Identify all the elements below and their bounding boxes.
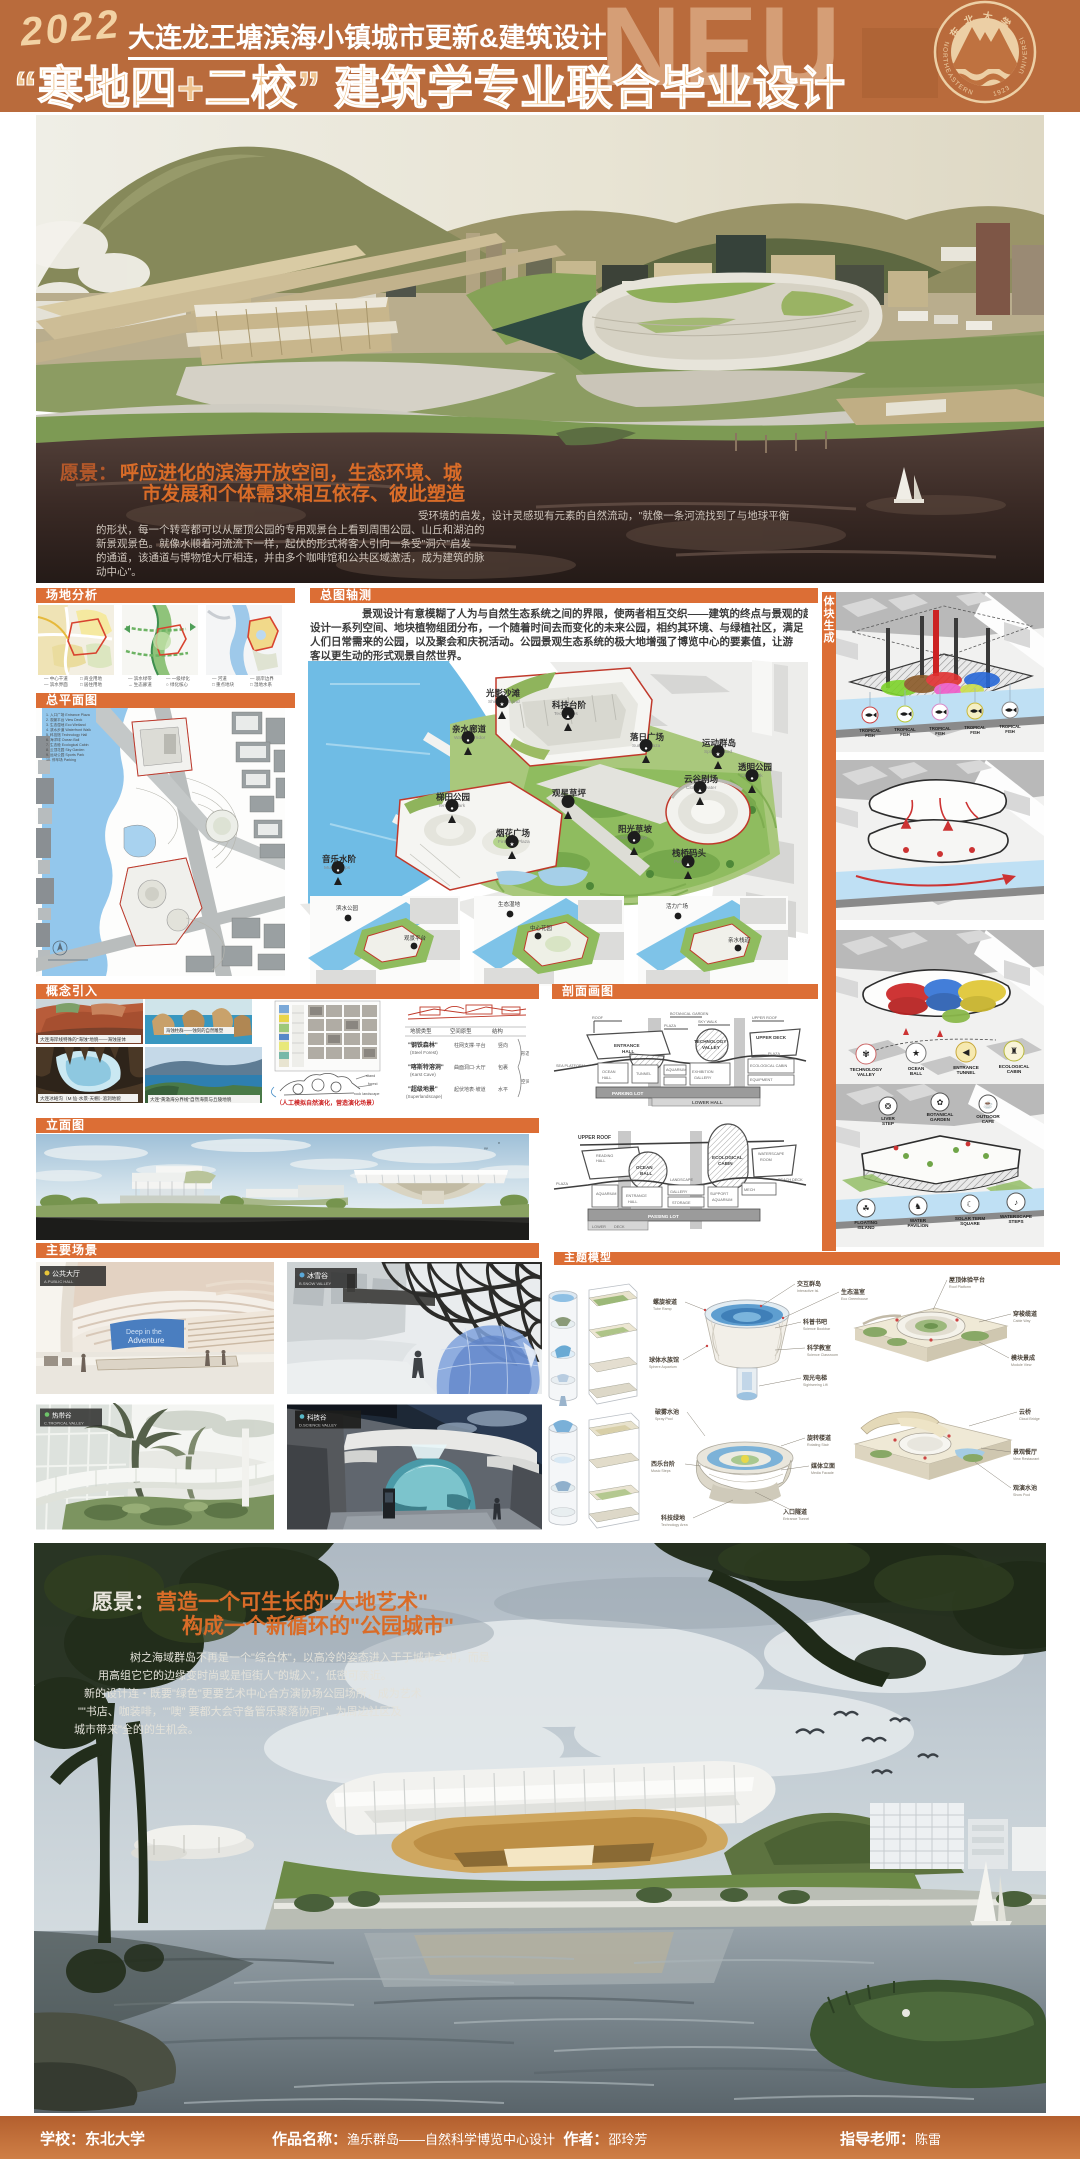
svg-text:ROOF: ROOF	[592, 1016, 604, 1020]
svg-text:Roof Platform: Roof Platform	[949, 1285, 971, 1289]
svg-text:空间原型: 空间原型	[450, 1027, 472, 1035]
svg-text:PAVILION: PAVILION	[907, 1223, 929, 1228]
svg-text:大连冰峪沟（M 仙·水景·天棚）·溶洞地貌: 大连冰峪沟（M 仙·水景·天棚）·溶洞地貌	[40, 1095, 121, 1102]
svg-text:3. 生态湿地 Eco Wetland: 3. 生态湿地 Eco Wetland	[46, 722, 86, 727]
svg-text:公共大厅: 公共大厅	[52, 1269, 80, 1278]
svg-text:EXHIBITION: EXHIBITION	[692, 1070, 714, 1074]
svg-text:— 滨水绿带: — 滨水绿带	[128, 675, 152, 682]
svg-text:Sightseeing Lift: Sightseeing Lift	[803, 1383, 828, 1387]
svg-text:DECK: DECK	[614, 1225, 625, 1229]
svg-text:GALLERY: GALLERY	[670, 1190, 688, 1194]
svg-text:stand: stand	[366, 1074, 375, 1078]
svg-text:Entrance Tunnel: Entrance Tunnel	[783, 1517, 809, 1521]
svg-text:EQUIPMENT: EQUIPMENT	[750, 1078, 773, 1082]
svg-text:科技绿地: 科技绿地	[661, 1514, 685, 1522]
svg-text:TUNNEL: TUNNEL	[636, 1072, 651, 1076]
svg-text:用高组它它的边缘变时尚或是恒街人"的城入"，低密可亲近。: 用高组它它的边缘变时尚或是恒街人"的城入"，低密可亲近。	[98, 1668, 392, 1682]
svg-text:D.SCIENCE VALLEY: D.SCIENCE VALLEY	[299, 1423, 337, 1428]
svg-text:曲面洞口·大厅: 曲面洞口·大厅	[454, 1064, 486, 1071]
svg-text:Spray Pool: Spray Pool	[655, 1417, 673, 1421]
svg-text:人们日常需来的公园，以及聚会和庆祝活动。公园景观生态系统的极: 人们日常需来的公园，以及聚会和庆祝活动。公园景观生态系统的极大地增强了博览中心的…	[310, 635, 793, 648]
svg-text:UPPER DECK: UPPER DECK	[756, 1035, 787, 1040]
svg-text:BALL: BALL	[910, 1071, 922, 1076]
svg-text:观景平台: 观景平台	[404, 934, 427, 942]
svg-text:HALL: HALL	[596, 1159, 606, 1163]
svg-text:亲水栈道: 亲水栈道	[728, 936, 751, 944]
svg-text:OCEAN: OCEAN	[636, 1165, 653, 1170]
svg-text:PLAZA: PLAZA	[768, 1052, 780, 1056]
svg-text:(Superlandscape): (Superlandscape)	[406, 1094, 443, 1099]
svg-text:包裹: 包裹	[498, 1064, 508, 1071]
svg-text:STORAGE: STORAGE	[672, 1201, 691, 1205]
svg-text:5. 科技馆 Technology Hall: 5. 科技馆 Technology Hall	[46, 732, 87, 737]
svg-text:中心花园: 中心花园	[530, 924, 553, 932]
svg-text:媒体立面: 媒体立面	[811, 1462, 835, 1470]
svg-text:柱网支撑·平台: 柱网支撑·平台	[454, 1042, 486, 1049]
svg-text:VALLEY: VALLEY	[857, 1072, 875, 1077]
svg-text:❂: ❂	[885, 1102, 892, 1111]
svg-text:→ 生态廊道: → 生态廊道	[128, 681, 152, 688]
svg-text:7. 生态舱 Ecological Cabin: 7. 生态舱 Ecological Cabin	[46, 742, 89, 747]
svg-text:ROOM: ROOM	[760, 1158, 772, 1162]
svg-text:★: ★	[716, 751, 721, 758]
svg-text:□ 湿地水系: □ 湿地水系	[250, 681, 272, 688]
svg-text:BOTANICAL GARDEN: BOTANICAL GARDEN	[670, 1012, 709, 1016]
svg-text:WATERSCAPE: WATERSCAPE	[758, 1152, 785, 1156]
svg-text:6. 海洋球 Ocean Ball: 6. 海洋球 Ocean Ball	[46, 737, 80, 742]
svg-text:热带谷: 热带谷	[52, 1411, 72, 1420]
svg-text:旋转楼道: 旋转楼道	[806, 1434, 831, 1442]
svg-text:□ 商业用地: □ 商业用地	[80, 675, 102, 682]
svg-text:PLAZA: PLAZA	[664, 1024, 676, 1028]
svg-text:活力广场: 活力广场	[666, 902, 689, 910]
svg-text:受环境的启发，设计灵感现有元素的自然流动，"就像一条河流找到: 受环境的启发，设计灵感现有元素的自然流动，"就像一条河流找到了与地球平衡	[418, 509, 790, 522]
svg-text:起伏地表·坡道: 起伏地表·坡道	[454, 1086, 486, 1093]
svg-text:愿景：: 愿景：	[60, 462, 117, 484]
svg-text:生态湿地: 生态湿地	[498, 900, 521, 908]
svg-text:屋顶体验平台: 屋顶体验平台	[949, 1276, 985, 1284]
svg-text:2. 观景平台 View Deck: 2. 观景平台 View Deck	[46, 717, 82, 722]
svg-text:科技谷: 科技谷	[307, 1413, 327, 1422]
svg-text:rock landscape: rock landscape	[354, 1092, 380, 1096]
svg-text:ᵛ: ᵛ	[497, 1141, 500, 1147]
svg-text:AQUARIUM: AQUARIUM	[712, 1198, 732, 1202]
svg-text:观光电梯: 观光电梯	[803, 1374, 827, 1382]
svg-text:科学教室: 科学教室	[807, 1344, 831, 1352]
svg-text:VALLEY: VALLEY	[702, 1045, 720, 1050]
svg-text:Adventure: Adventure	[128, 1336, 165, 1345]
svg-text:□ 居住用地: □ 居住用地	[80, 681, 102, 688]
svg-text:的通道，该通道与博物馆大厅相连，并由多个咖啡馆和公共区域激活: 的通道，该通道与博物馆大厅相连，并由多个咖啡馆和公共区域激活，成为建筑的脉	[96, 551, 485, 564]
svg-text:View Restaurant: View Restaurant	[1013, 1457, 1039, 1461]
svg-text:市发展和个体需求相互依存、彼此塑造: 市发展和个体需求相互依存、彼此塑造	[142, 482, 466, 505]
svg-text:★: ★	[500, 701, 505, 708]
svg-text:TUNNEL: TUNNEL	[957, 1070, 976, 1075]
svg-text:●: ●	[336, 868, 339, 874]
svg-text:FISH: FISH	[865, 733, 875, 738]
svg-text:✿: ✿	[937, 1098, 944, 1107]
svg-text:HALL: HALL	[602, 1076, 612, 1080]
svg-text:ENTRANCE: ENTRANCE	[626, 1194, 647, 1198]
svg-text:地貌类型: 地貌类型	[410, 1027, 432, 1035]
svg-text:Cloud Bridge: Cloud Bridge	[1019, 1417, 1040, 1421]
svg-text:B.SNOW VALLEY: B.SNOW VALLEY	[299, 1281, 331, 1286]
svg-text:PASSING LOT: PASSING LOT	[648, 1214, 679, 1219]
svg-text:Rotating Stair: Rotating Stair	[807, 1443, 830, 1447]
svg-text:科普书吧: 科普书吧	[803, 1318, 827, 1326]
svg-text:(Steel Forest): (Steel Forest)	[410, 1050, 438, 1055]
svg-text:破雾水池: 破雾水池	[655, 1408, 679, 1416]
svg-text:●: ●	[632, 838, 635, 844]
svg-text:▲: ▲	[697, 788, 702, 794]
svg-text:"超级地景": "超级地景"	[408, 1085, 438, 1093]
svg-text:SQUARE: SQUARE	[960, 1221, 980, 1226]
svg-text:◀: ◀	[963, 1047, 970, 1057]
svg-text:交互群岛: 交互群岛	[797, 1280, 821, 1288]
svg-text:Module View: Module View	[1011, 1363, 1032, 1367]
svg-text:BEACH DECK: BEACH DECK	[778, 1178, 803, 1182]
svg-text:♪: ♪	[1014, 1198, 1018, 1207]
svg-text:ECOLOGICAL CABIN: ECOLOGICAL CABIN	[750, 1064, 787, 1068]
svg-text:— 一级绿化: — 一级绿化	[166, 675, 190, 682]
svg-text:穿梭缆道: 穿梭缆道	[1013, 1310, 1037, 1318]
svg-text:新的设计连・既要"绿色"更要艺术中心合方演协场公园场所，成为: 新的设计连・既要"绿色"更要艺术中心合方演协场公园场所，成为艺术	[84, 1686, 422, 1700]
svg-text:READING: READING	[596, 1154, 613, 1158]
svg-text:""书店、咖装啡，""噢" 要都大会守备管乐聚落协同"，为周: ""书店、咖装啡，""噢" 要都大会守备管乐聚落协同"，为周边社区及	[78, 1704, 401, 1718]
svg-text:球体水族馆: 球体水族馆	[649, 1356, 679, 1364]
svg-text:愿景：: 愿景：	[92, 1591, 155, 1614]
svg-text:□ 重点地块: □ 重点地块	[212, 681, 234, 688]
svg-text:AQUARIUM: AQUARIUM	[596, 1192, 616, 1196]
svg-text:西乐台阶: 西乐台阶	[651, 1460, 675, 1468]
svg-text:1. 入口广场 Entrance Plaza: 1. 入口广场 Entrance Plaza	[46, 712, 90, 717]
svg-text:10. 停车场 Parking: 10. 停车场 Parking	[46, 757, 76, 762]
svg-text:竖向: 竖向	[498, 1042, 508, 1049]
svg-text:9. 运动公园 Sports Park: 9. 运动公园 Sports Park	[46, 752, 84, 757]
svg-text:设计一系列空间、地块植物组团分布，一个随着时间去而变化的未来: 设计一系列空间、地块植物组团分布，一个随着时间去而变化的未来公园，相约其环境、与…	[310, 621, 804, 634]
svg-text:SUPPORT: SUPPORT	[710, 1192, 729, 1196]
svg-text:BALL: BALL	[640, 1171, 652, 1176]
svg-text:LOWER HALL: LOWER HALL	[692, 1100, 723, 1105]
svg-text:Cable Way: Cable Way	[1013, 1319, 1031, 1323]
svg-text:形态: 形态	[521, 1050, 529, 1057]
svg-text:(Karst Cave): (Karst Cave)	[410, 1072, 436, 1077]
svg-text:8. 云顶花园 Sky Garden: 8. 云顶花园 Sky Garden	[46, 747, 84, 752]
svg-text:模块景成: 模块景成	[1011, 1354, 1035, 1362]
svg-text:HALL: HALL	[628, 1200, 638, 1204]
svg-text:4. 滨水步道 Waterfront Walk: 4. 滨水步道 Waterfront Walk	[46, 727, 91, 732]
svg-text:●: ●	[450, 806, 453, 812]
svg-text:CABIN: CABIN	[1007, 1069, 1022, 1074]
svg-text:PARKING LOT: PARKING LOT	[612, 1091, 643, 1096]
svg-text:景观餐厅: 景观餐厅	[1012, 1448, 1037, 1456]
svg-text:"钢铁森林": "钢铁森林"	[408, 1041, 438, 1049]
svg-text:大连海岸线特殊的"海蚀"地貌——海蚀崖体: 大连海岸线特殊的"海蚀"地貌——海蚀崖体	[40, 1036, 126, 1043]
svg-text:构成一个新循环的"公园城市": 构成一个新循环的"公园城市"	[182, 1614, 454, 1638]
svg-text:Interactive Isl.: Interactive Isl.	[797, 1289, 819, 1293]
svg-text:SEA PLATFORM: SEA PLATFORM	[556, 1064, 585, 1068]
svg-text:LOWER: LOWER	[592, 1225, 606, 1229]
svg-text:forest: forest	[368, 1082, 378, 1086]
svg-text:的形状，每一个转弯都可以从屋顶公园的专用观景台上看到周围公园: 的形状，每一个转弯都可以从屋顶公园的专用观景台上看到周围公园、山丘和湖泊的	[96, 523, 485, 536]
svg-text:FISH: FISH	[900, 732, 910, 737]
svg-text:✾: ✾	[862, 1049, 870, 1059]
svg-text:FISH: FISH	[970, 730, 980, 735]
svg-text:▲: ▲	[685, 862, 690, 868]
svg-text:Tube Ramp: Tube Ramp	[653, 1307, 672, 1311]
svg-text:动中心"。: 动中心"。	[96, 565, 142, 578]
svg-text:●: ●	[644, 746, 647, 752]
svg-text:SKY WALK: SKY WALK	[698, 1020, 718, 1024]
svg-text:HALL: HALL	[622, 1049, 634, 1054]
svg-text:Show Pool: Show Pool	[1013, 1493, 1030, 1497]
svg-text:呼应进化的滨海开放空间，生态环境、城: 呼应进化的滨海开放空间，生态环境、城	[120, 461, 462, 484]
svg-text:景观设计有意模糊了人为与自然生态系统之间的界限，使两者相互交: 景观设计有意模糊了人为与自然生态系统之间的界限，使两者相互交织——建筑的终点与景…	[361, 607, 808, 620]
svg-text:UPPER ROOF: UPPER ROOF	[752, 1016, 778, 1020]
svg-text:新景观景色。就像水顺着河流流下一样，起伏的形式将客人引向一条: 新景观景色。就像水顺着河流流下一样，起伏的形式将客人引向一条受"洞穴"启发	[96, 537, 471, 550]
svg-text:Eco Greenhouse: Eco Greenhouse	[841, 1297, 868, 1301]
svg-text:城市带来"全的的生机会。: 城市带来"全的的生机会。	[74, 1722, 199, 1736]
svg-text:树之海域群岛不再是一个"综合体"，以高冷的姿态进入于于城市之: 树之海域群岛不再是一个"综合体"，以高冷的姿态进入于于城市之中，而是	[130, 1650, 490, 1664]
svg-text:GARDEN: GARDEN	[930, 1117, 951, 1122]
svg-text:ECOLOGICAL: ECOLOGICAL	[712, 1155, 743, 1160]
svg-text:Music Steps: Music Steps	[651, 1469, 671, 1473]
svg-text:大连"黄渤海分界线"自然海景与丘陵地貌: 大连"黄渤海分界线"自然海景与丘陵地貌	[150, 1096, 232, 1103]
svg-text:OCEAN: OCEAN	[602, 1070, 616, 1074]
svg-text:冰雪谷: 冰雪谷	[307, 1271, 328, 1280]
svg-text:PLAZA: PLAZA	[556, 1182, 568, 1186]
svg-text:STEPS: STEPS	[1008, 1219, 1023, 1224]
svg-text:CAFE: CAFE	[982, 1119, 995, 1124]
svg-text:C.TROPICAL VALLEY: C.TROPICAL VALLEY	[44, 1421, 84, 1426]
svg-text:FISH: FISH	[1005, 729, 1015, 734]
svg-text:客以更生动的形式观景自然世界。: 客以更生动的形式观景自然世界。	[309, 649, 468, 662]
svg-text:☾: ☾	[966, 1200, 973, 1209]
svg-text:结构: 结构	[492, 1027, 503, 1035]
svg-text:ENTRANCE: ENTRANCE	[614, 1043, 640, 1048]
svg-text:滨水公园: 滨水公园	[336, 904, 359, 912]
svg-text:— 中心干道: — 中心干道	[44, 675, 68, 682]
svg-text:♞: ♞	[914, 1202, 921, 1211]
svg-text:★: ★	[510, 841, 515, 848]
svg-text:Technology Area: Technology Area	[661, 1523, 688, 1527]
svg-text:☕: ☕	[983, 1099, 993, 1109]
svg-text:GALLERY: GALLERY	[694, 1076, 712, 1080]
svg-text:●: ●	[750, 776, 753, 782]
svg-text:空间: 空间	[521, 1078, 529, 1085]
svg-text:水平: 水平	[498, 1086, 508, 1093]
svg-text:Sphere Aquarium: Sphere Aquarium	[649, 1365, 677, 1369]
svg-text:Media Facade: Media Facade	[811, 1471, 834, 1475]
svg-text:（人工模拟自然演化，营造演化场景）: （人工模拟自然演化，营造演化场景）	[276, 1099, 378, 1107]
svg-text:ᵛᵛ: ᵛᵛ	[483, 1147, 488, 1153]
svg-text:Science Classroom: Science Classroom	[807, 1353, 838, 1357]
svg-text:Science Bookbar: Science Bookbar	[803, 1327, 831, 1331]
svg-text:— 滨水界面: — 滨水界面	[44, 681, 68, 688]
svg-text:MECH: MECH	[744, 1188, 755, 1192]
svg-text:CABIN: CABIN	[718, 1161, 733, 1166]
svg-text:海蚀柱群——蚀刻的自然雕塑: 海蚀柱群——蚀刻的自然雕塑	[166, 1027, 224, 1034]
svg-text:TECHNOLOGY: TECHNOLOGY	[694, 1039, 726, 1044]
svg-text:ISLAND: ISLAND	[857, 1225, 875, 1230]
svg-text:▲: ▲	[565, 714, 570, 720]
svg-text:云桥: 云桥	[1019, 1408, 1032, 1416]
svg-text:●: ●	[466, 738, 469, 744]
svg-text:AQUARIUM: AQUARIUM	[666, 1068, 686, 1072]
svg-text:生态温室: 生态温室	[841, 1288, 865, 1296]
svg-text:★: ★	[912, 1048, 920, 1058]
svg-text:☘: ☘	[862, 1204, 869, 1213]
svg-text:UPPER ROOF: UPPER ROOF	[578, 1135, 611, 1141]
svg-text:营造一个可生长的"大地艺术": 营造一个可生长的"大地艺术"	[156, 1590, 428, 1614]
svg-text:LANDSCAPE: LANDSCAPE	[670, 1178, 693, 1182]
svg-text:A.PUBLIC HALL: A.PUBLIC HALL	[44, 1279, 74, 1284]
svg-text:Deep in the: Deep in the	[126, 1329, 162, 1336]
svg-text:螺旋坡道: 螺旋坡道	[653, 1298, 677, 1306]
svg-text:— 驳岸边界: — 驳岸边界	[250, 675, 274, 682]
svg-text:STEP: STEP	[882, 1121, 894, 1126]
svg-text:FISH: FISH	[935, 731, 945, 736]
svg-text:"喀斯特溶洞": "喀斯特溶洞"	[408, 1063, 444, 1071]
svg-text:♜: ♜	[1010, 1046, 1018, 1056]
svg-text:观演水池: 观演水池	[1013, 1484, 1037, 1492]
svg-text:○ 绿化核心: ○ 绿化核心	[166, 681, 188, 688]
svg-text:— 河道: — 河道	[212, 675, 227, 682]
